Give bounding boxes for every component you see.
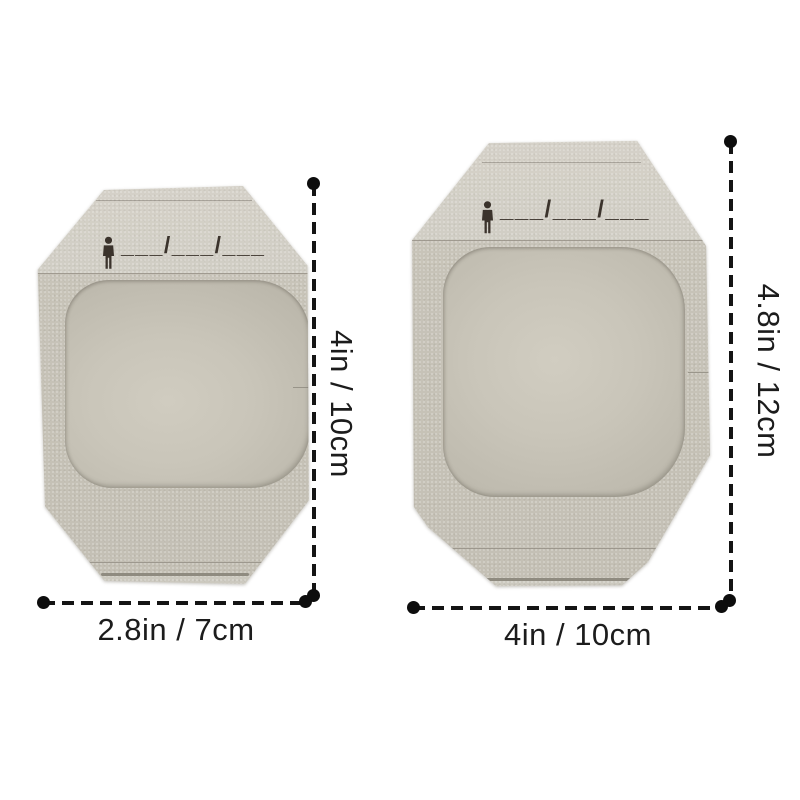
product-diagram-canvas: ___/___/___ ___/___/___ 4in / 10c (0, 0, 800, 800)
large-dressing-window (443, 247, 685, 497)
large-width-dimension-line (413, 606, 724, 610)
small-height-dimension-line (312, 184, 316, 597)
large-dressing-body: ___/___/___ (410, 140, 710, 587)
small-dressing-film-seam (293, 387, 313, 388)
large-dressing-band-fold-line (410, 240, 710, 241)
dimension-endpoint-dot (299, 595, 312, 608)
large-dressing: ___/___/___ (410, 140, 710, 587)
dimension-endpoint-dot (724, 135, 737, 148)
large-dressing-bottom-fold-line (440, 548, 686, 549)
small-height-label: 4in / 10cm (324, 294, 358, 514)
date-placeholder: ___/___/___ (500, 196, 650, 224)
dimension-endpoint-dot (715, 600, 728, 613)
small-dressing-window (65, 280, 310, 488)
large-dressing-film-seam (688, 372, 710, 373)
large-dressing-print-band (410, 140, 710, 240)
large-dressing-bottom-tab (464, 581, 662, 587)
small-dressing-body: ___/___/___ (35, 186, 313, 584)
person-icon (479, 200, 496, 236)
small-dressing-bottom-fold-line (57, 562, 291, 563)
dimension-endpoint-dot (37, 596, 50, 609)
small-dressing-bottom-tab (77, 576, 272, 584)
large-dressing-tab-fold-line (482, 162, 641, 163)
dimension-endpoint-dot (307, 177, 320, 190)
small-width-dimension-line (43, 601, 308, 605)
large-height-dimension-line (729, 142, 733, 601)
small-dressing: ___/___/___ (35, 186, 313, 584)
large-height-label: 4.8in / 12cm (751, 251, 785, 491)
small-width-label: 2.8in / 7cm (56, 612, 296, 648)
dimension-endpoint-dot (407, 601, 420, 614)
person-icon (100, 236, 117, 271)
small-dressing-tab-fold-line (96, 200, 252, 201)
large-width-label: 4in / 10cm (458, 617, 698, 653)
small-dressing-band-fold-line (35, 273, 313, 274)
date-placeholder: ___/___/___ (121, 232, 265, 259)
